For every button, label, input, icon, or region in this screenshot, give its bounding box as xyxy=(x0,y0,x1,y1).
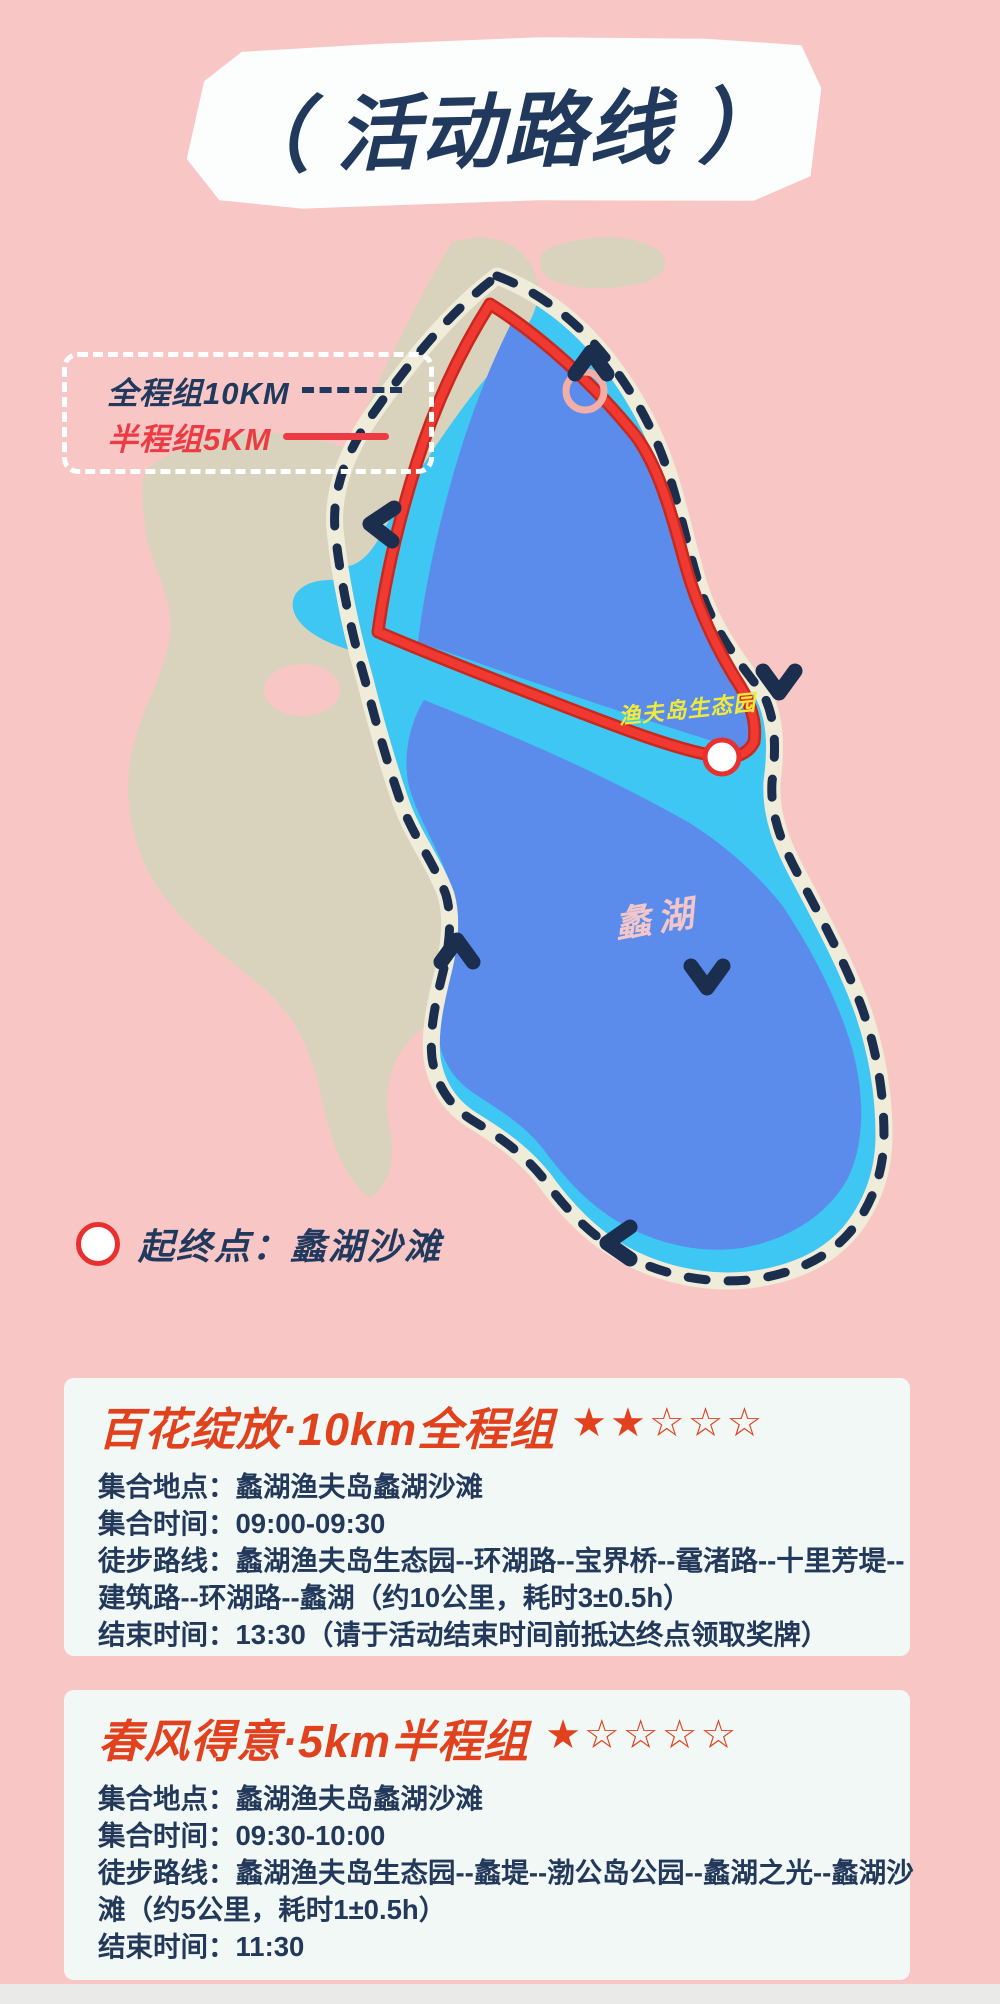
course-title-5km: 春风得意·5km半程组 xyxy=(98,1705,529,1770)
course-card-5km: 春风得意·5km半程组 ★☆☆☆☆ 集合地点：蠡湖渔夫岛蠡湖沙滩 集合时间：09… xyxy=(64,1690,910,1980)
end-time-line: 结束时间：13:30（请于活动结束时间前抵达终点领取奖牌） xyxy=(98,1616,910,1653)
legend-full-label: 全程组10KM xyxy=(107,368,290,413)
card-body: 集合地点：蠡湖渔夫岛蠡湖沙滩 集合时间：09:00-09:30 徒步路线：蠡湖渔… xyxy=(98,1468,910,1653)
meeting-point-line: 集合地点：蠡湖渔夫岛蠡湖沙滩 xyxy=(98,1780,910,1817)
route-line-1: 徒步路线：蠡湖渔夫岛生态园--蠡堤--渤公岛公园--蠡湖之光--蠡湖沙 xyxy=(98,1854,910,1891)
course-title-10km: 百花绽放·10km全程组 xyxy=(98,1393,555,1458)
route-line-2: 建筑路--环湖路--蠡湖（约10公里，耗时3±0.5h） xyxy=(98,1579,910,1616)
bottom-strip xyxy=(0,1984,1000,2004)
stars-filled: ★ xyxy=(545,1713,584,1757)
land-clearing xyxy=(264,664,340,716)
stars-empty: ☆☆☆☆ xyxy=(584,1713,739,1757)
card-body: 集合地点：蠡湖渔夫岛蠡湖沙滩 集合时间：09:30-10:00 徒步路线：蠡湖渔… xyxy=(98,1780,910,1965)
legend-half-label: 半程组5KM xyxy=(107,414,271,459)
start-finish-text: 起终点：蠡湖沙滩 xyxy=(138,1218,442,1270)
difficulty-stars: ★☆☆☆☆ xyxy=(545,1712,739,1758)
card-title-row: 百花绽放·10km全程组 ★★☆☆☆ xyxy=(98,1394,910,1456)
difficulty-stars: ★★☆☆☆ xyxy=(571,1400,765,1446)
meeting-time-line: 集合时间：09:30-10:00 xyxy=(98,1817,910,1854)
dashed-line-icon xyxy=(302,387,402,393)
card-title-row: 春风得意·5km半程组 ★☆☆☆☆ xyxy=(98,1706,910,1768)
meeting-time-line: 集合时间：09:00-09:30 xyxy=(98,1505,910,1542)
route-line-2: 滩（约5公里，耗时1±0.5h） xyxy=(98,1891,910,1928)
legend-row-half: 半程组5KM xyxy=(107,413,429,459)
start-finish-marker xyxy=(705,740,739,774)
direction-arrow-icon xyxy=(763,671,795,693)
land-area-north xyxy=(540,237,665,288)
legend-row-full: 全程组10KM xyxy=(107,367,429,413)
start-finish-legend: 起终点：蠡湖沙滩 xyxy=(76,1218,442,1270)
start-point-icon xyxy=(76,1222,120,1266)
end-time-line: 结束时间：11:30 xyxy=(98,1928,910,1965)
stars-empty: ☆☆☆ xyxy=(649,1401,766,1445)
route-legend: 全程组10KM 半程组5KM xyxy=(62,352,434,474)
event-route-poster: （ 活动路线 ） 全程组10KM 半程组5KM 渔夫岛生态园 蠡湖 起终点：蠡湖… xyxy=(0,0,1000,2004)
page-title: （ 活动路线 ） xyxy=(226,59,782,190)
course-card-10km: 百花绽放·10km全程组 ★★☆☆☆ 集合地点：蠡湖渔夫岛蠡湖沙滩 集合时间：0… xyxy=(64,1378,910,1656)
stars-filled: ★★ xyxy=(571,1401,649,1445)
route-line-1: 徒步路线：蠡湖渔夫岛生态园--环湖路--宝界桥--鼋渚路--十里芳堤-- xyxy=(98,1542,910,1579)
meeting-point-line: 集合地点：蠡湖渔夫岛蠡湖沙滩 xyxy=(98,1468,910,1505)
solid-line-icon xyxy=(283,433,389,440)
title-block: （ 活动路线 ） xyxy=(184,31,823,212)
